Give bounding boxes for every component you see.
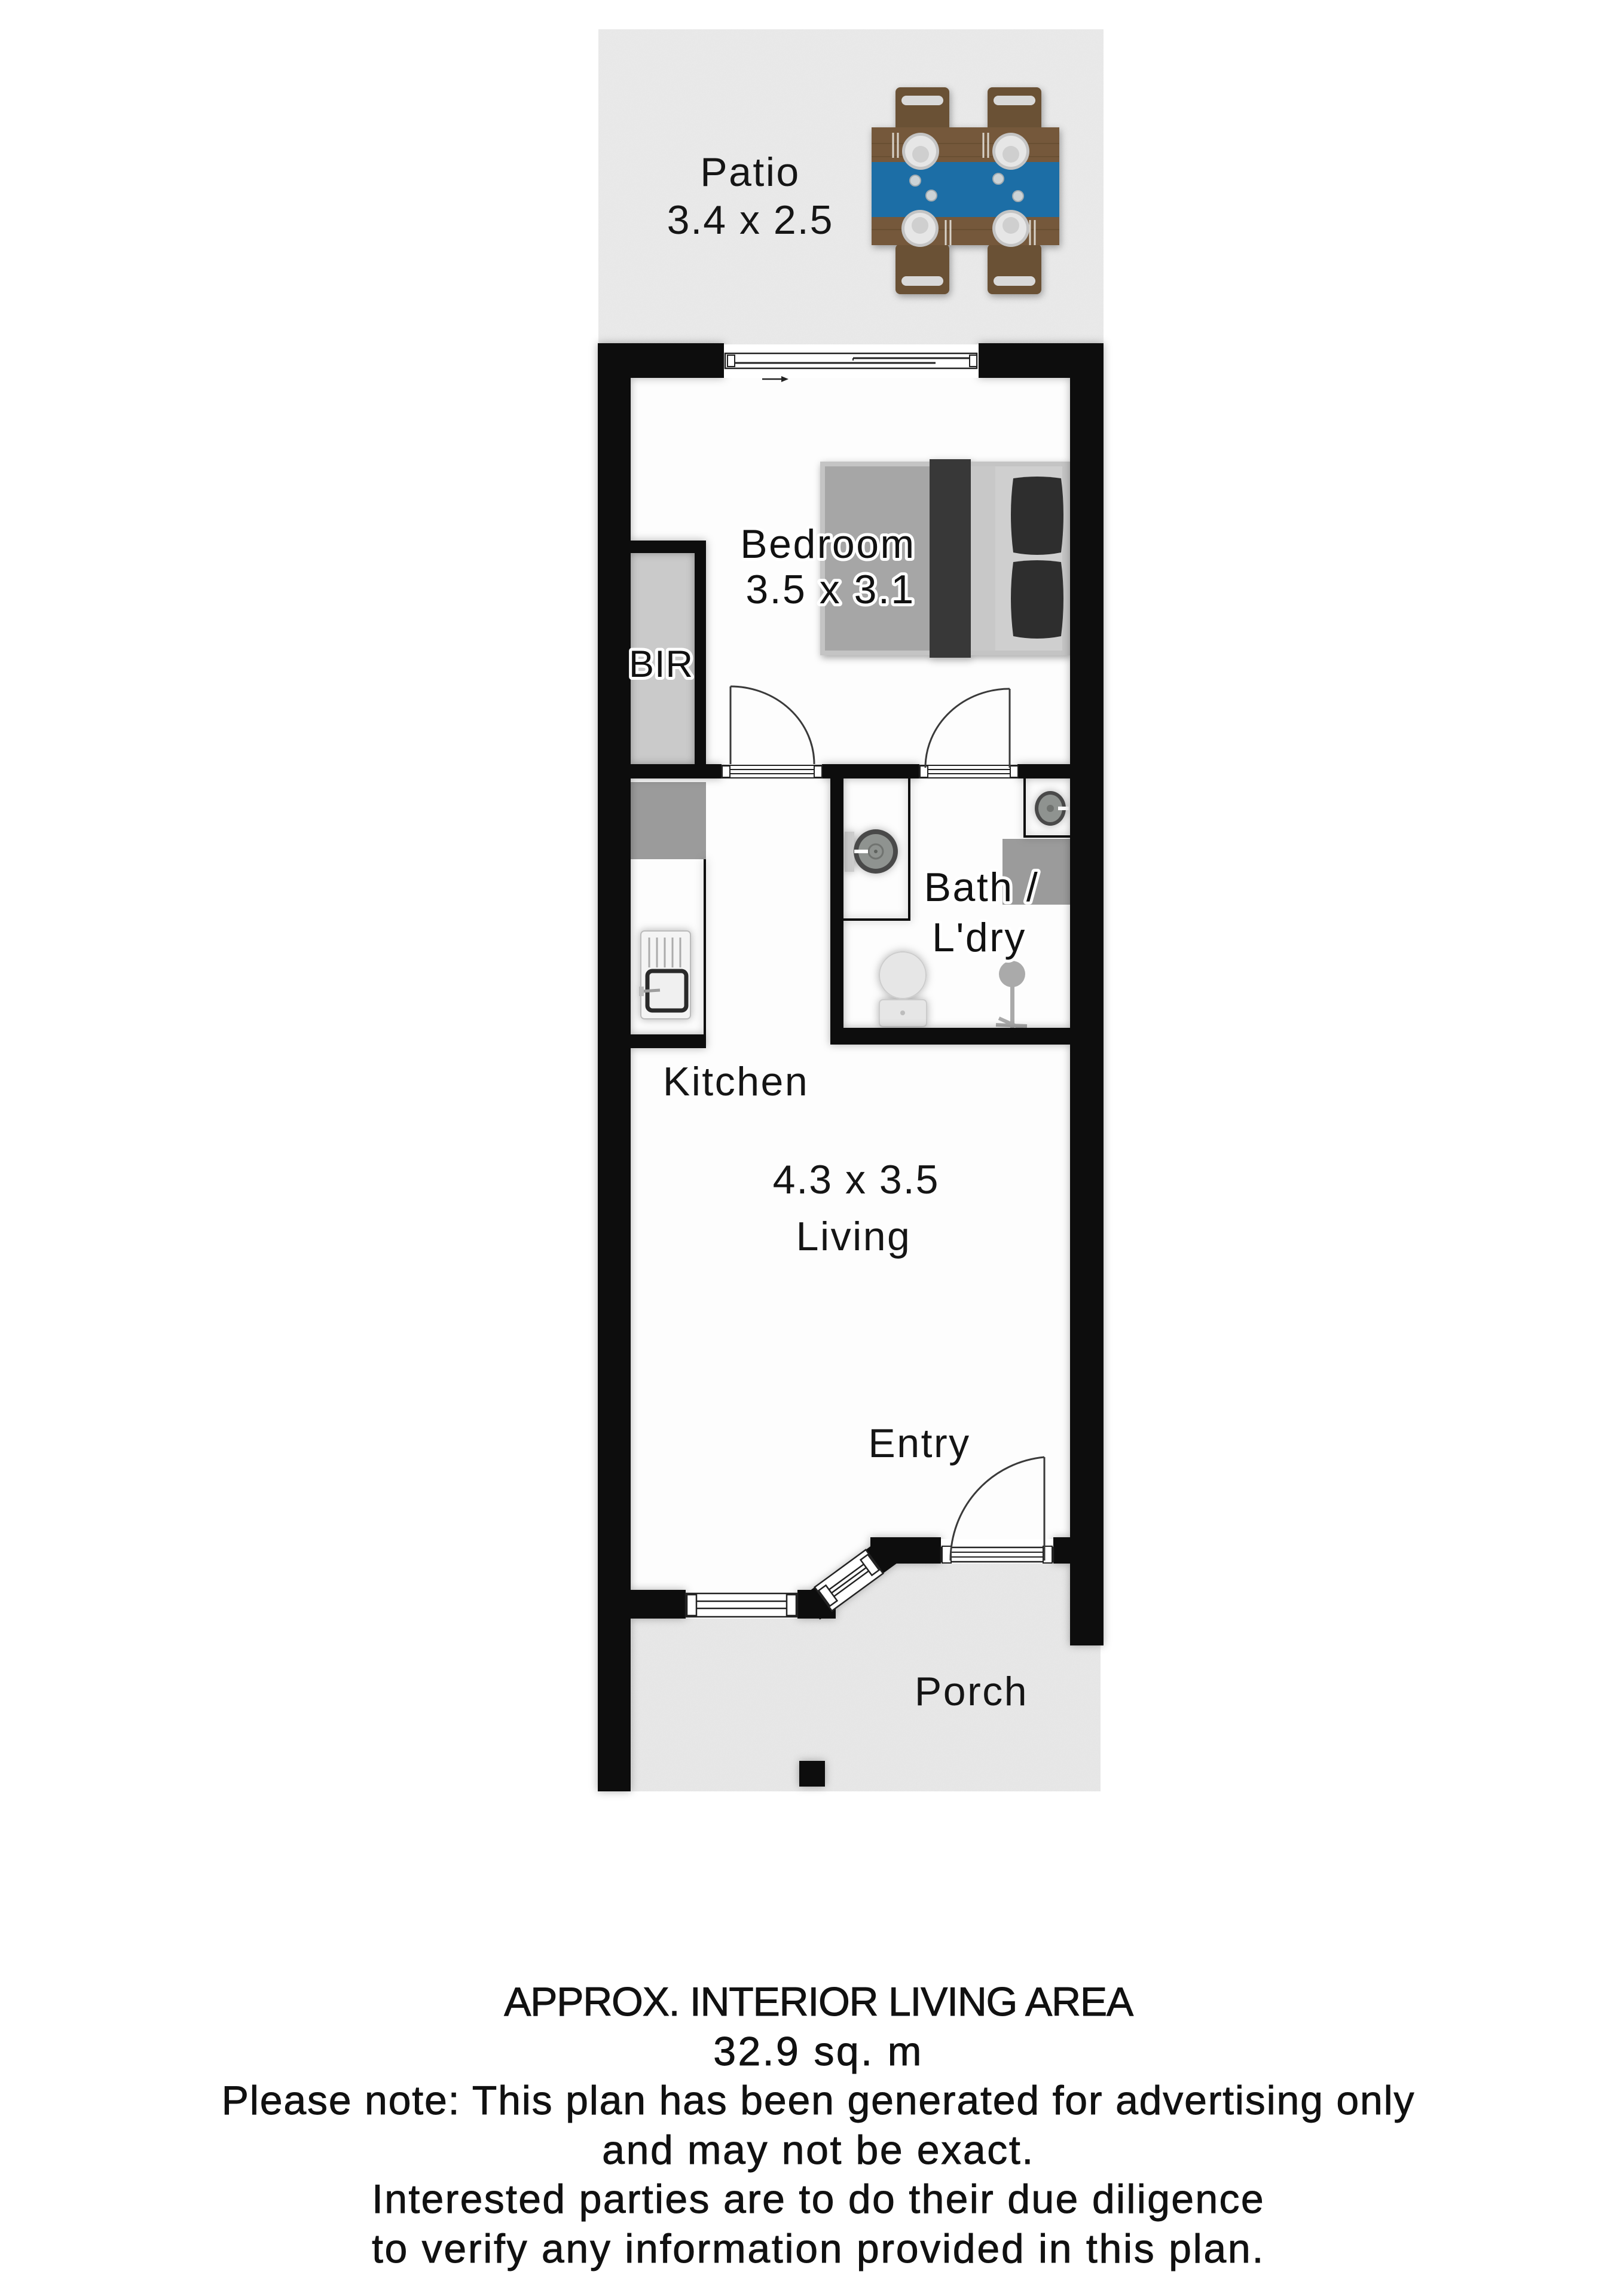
svg-text:Patio: Patio bbox=[700, 149, 800, 195]
svg-text:to verify any information prov: to verify any information provided in th… bbox=[372, 2226, 1265, 2271]
svg-text:Bedroom: Bedroom bbox=[740, 521, 915, 567]
svg-text:Living: Living bbox=[796, 1214, 912, 1259]
svg-text:L'dry: L'dry bbox=[932, 915, 1026, 960]
svg-text:Interested parties are to do t: Interested parties are to do their due d… bbox=[372, 2176, 1265, 2222]
svg-text:3.5 x 3.1: 3.5 x 3.1 bbox=[745, 567, 915, 612]
svg-text:3.4 x 2.5: 3.4 x 2.5 bbox=[667, 197, 834, 243]
svg-text:4.3 x 3.5: 4.3 x 3.5 bbox=[773, 1157, 940, 1202]
svg-text:and may not be exact.: and may not be exact. bbox=[602, 2127, 1035, 2173]
svg-text:Porch: Porch bbox=[915, 1669, 1028, 1714]
svg-text:Please note: This plan has bee: Please note: This plan has been generate… bbox=[222, 2078, 1416, 2123]
svg-text:Entry: Entry bbox=[868, 1421, 970, 1466]
svg-text:Kitchen: Kitchen bbox=[663, 1059, 809, 1104]
svg-text:Bath /: Bath / bbox=[924, 865, 1040, 910]
svg-text:32.9 sq. m: 32.9 sq. m bbox=[713, 2029, 924, 2074]
svg-text:BIR: BIR bbox=[629, 643, 693, 685]
svg-text:APPROX. INTERIOR LIVING AREA: APPROX. INTERIOR LIVING AREA bbox=[504, 1979, 1134, 2025]
